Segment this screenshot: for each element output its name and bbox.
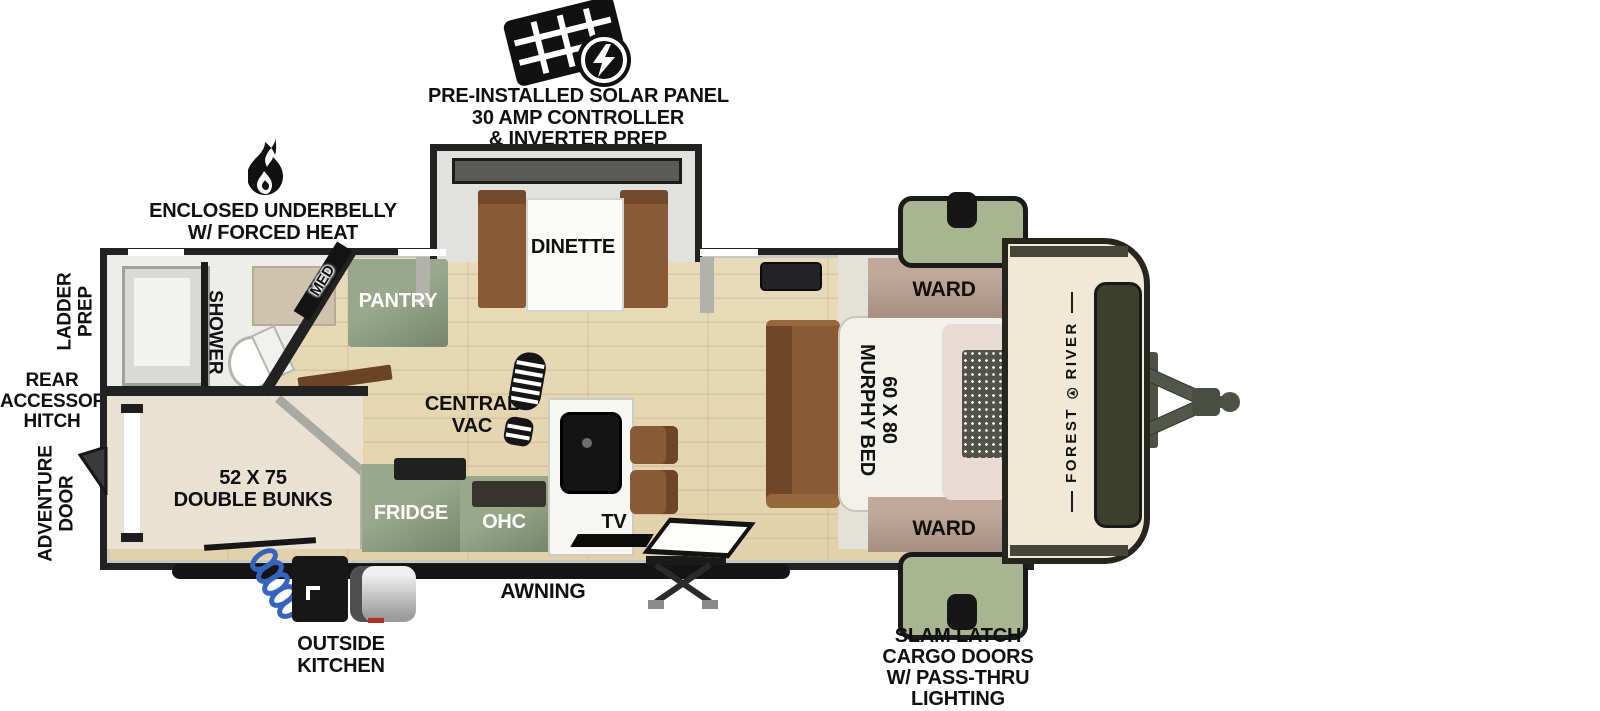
central-vac-line: CENTRAL — [412, 394, 532, 416]
adventure-door-label: ADVENTURE DOOR — [36, 439, 77, 569]
cargo-latch-icon — [947, 192, 977, 228]
dinette-label: DINETTE — [520, 237, 626, 259]
brand-word: FOREST — [1064, 407, 1080, 483]
bunk-window-cap — [121, 533, 143, 542]
outdoor-faucet-icon — [300, 576, 326, 604]
brand-word: RIVER — [1064, 321, 1080, 379]
griddle-icon — [350, 566, 416, 622]
fridge-label: FRIDGE — [361, 503, 461, 525]
adventure-door-flap-icon — [78, 447, 108, 495]
murphy-bed-label: 60 X 80 MURPHY BED — [853, 335, 899, 485]
roof-vent — [760, 262, 822, 291]
cargo-doors-line: W/ PASS-THRU — [878, 668, 1038, 689]
adventure-door-line: ADVENTURE — [36, 439, 57, 569]
double-bunks-line: 52 X 75 — [168, 468, 338, 490]
dinette-bench — [478, 190, 526, 308]
solar-note-line: 30 AMP CONTROLLER — [428, 108, 728, 130]
window — [128, 249, 184, 256]
cap-trim — [1010, 545, 1128, 556]
solar-note-line: PRE-INSTALLED SOLAR PANEL — [428, 86, 728, 108]
double-bunks-line: DOUBLE BUNKS — [168, 490, 338, 512]
cooktop — [472, 481, 546, 507]
shower-label: SHOWER — [204, 282, 225, 382]
adventure-door-line: DOOR — [57, 439, 78, 569]
flame-icon — [248, 134, 296, 200]
entry-steps-icon — [644, 556, 734, 614]
cargo-doors-note: SLAM LATCH CARGO DOORS W/ PASS-THRU LIGH… — [878, 626, 1038, 710]
griddle-knob — [368, 618, 384, 623]
sofa — [766, 326, 840, 502]
brand-dash — [1071, 491, 1073, 512]
murphy-bed-line: MURPHY BED — [856, 335, 878, 485]
cargo-doors-line: SLAM LATCH — [878, 626, 1038, 647]
cargo-doors-line: LIGHTING — [878, 689, 1038, 710]
a-frame-hitch-icon — [1136, 348, 1240, 456]
outside-kitchen-line: OUTSIDE — [281, 634, 401, 656]
ward-bottom-label: WARD — [894, 518, 994, 541]
rear-hitch-line: ACCESSORY — [0, 392, 104, 413]
solar-panel-icon — [500, 0, 650, 90]
wing-wall — [700, 257, 714, 313]
underbelly-note: ENCLOSED UNDERBELLY W/ FORCED HEAT — [118, 201, 428, 244]
bunk-window — [124, 410, 140, 536]
dining-chair — [630, 426, 678, 464]
window — [700, 249, 758, 256]
kitchen-sink — [560, 412, 622, 494]
sofa-arm — [766, 494, 840, 508]
cargo-doors-line: CARGO DOORS — [878, 647, 1038, 668]
fridge-top-grill — [394, 458, 466, 480]
outside-kitchen-label: OUTSIDE KITCHEN — [281, 634, 401, 677]
window — [398, 249, 446, 256]
ladder-prep-label: LADDER PREP — [55, 267, 96, 357]
solar-note: PRE-INSTALLED SOLAR PANEL 30 AMP CONTROL… — [428, 86, 728, 151]
central-vac-label: CENTRAL VAC — [412, 394, 532, 437]
murphy-bed-line: 60 X 80 — [877, 335, 899, 485]
ladder-prep-line: LADDER — [55, 267, 76, 357]
cap-trim — [1010, 246, 1128, 257]
rear-accessory-hitch-label: REAR ACCESSORY HITCH — [0, 371, 104, 433]
shower-pan — [134, 278, 190, 366]
underbelly-note-line: ENCLOSED UNDERBELLY — [118, 201, 428, 223]
tv-unit — [570, 534, 654, 547]
forest-river-logo-icon — [1066, 388, 1079, 399]
dining-chair — [630, 470, 678, 514]
tv-label: TV — [592, 512, 636, 534]
pantry-label: PANTRY — [346, 291, 450, 313]
rear-hitch-line: REAR — [0, 371, 104, 392]
central-vac-line: VAC — [412, 416, 532, 438]
brand-mark: FOREST RIVER — [1062, 292, 1082, 512]
sink-faucet — [582, 438, 592, 448]
ohc-label: OHC — [454, 512, 554, 534]
double-bunks-label: 52 X 75 DOUBLE BUNKS — [168, 468, 338, 511]
brand-dash — [1071, 292, 1073, 313]
floorplan-canvas: PRE-INSTALLED SOLAR PANEL 30 AMP CONTROL… — [0, 0, 1600, 711]
bunk-window-cap — [121, 404, 143, 413]
dinette-bench — [620, 190, 668, 308]
awning-label: AWNING — [493, 581, 593, 604]
outside-kitchen-line: KITCHEN — [281, 656, 401, 678]
ward-top-label: WARD — [894, 279, 994, 302]
bathroom-bunk-wall — [100, 386, 368, 396]
front-window — [1094, 282, 1142, 528]
rear-hitch-line: HITCH — [0, 412, 104, 433]
ladder-prep-line: PREP — [76, 267, 97, 357]
underbelly-note-line: W/ FORCED HEAT — [118, 223, 428, 245]
slideout-window — [452, 158, 682, 184]
